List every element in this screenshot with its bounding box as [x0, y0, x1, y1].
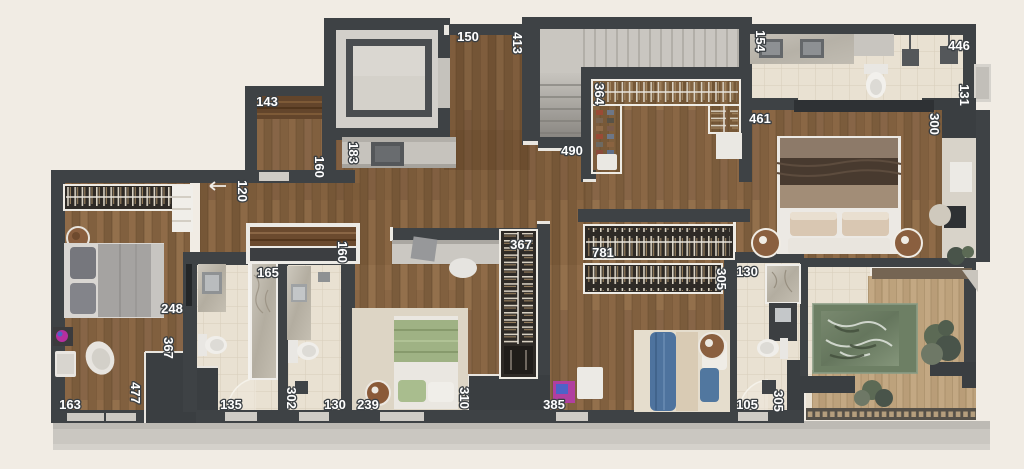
- svg-text:130: 130: [324, 397, 346, 412]
- svg-text:367: 367: [510, 237, 532, 252]
- svg-text:143: 143: [256, 94, 278, 109]
- svg-text:781: 781: [592, 245, 614, 260]
- svg-text:364: 364: [592, 83, 607, 105]
- svg-text:154: 154: [753, 30, 768, 52]
- svg-text:461: 461: [749, 111, 771, 126]
- svg-text:183: 183: [346, 142, 361, 164]
- svg-text:300: 300: [927, 113, 942, 135]
- svg-text:490: 490: [561, 143, 583, 158]
- svg-text:305: 305: [714, 268, 729, 290]
- svg-text:165: 165: [257, 265, 279, 280]
- svg-text:413: 413: [510, 32, 525, 54]
- svg-text:302: 302: [284, 387, 299, 409]
- svg-text:160: 160: [312, 156, 327, 178]
- svg-text:305: 305: [771, 390, 786, 412]
- svg-text:385: 385: [543, 397, 565, 412]
- svg-text:163: 163: [59, 397, 81, 412]
- svg-text:135: 135: [220, 397, 242, 412]
- svg-text:160: 160: [335, 241, 350, 263]
- svg-text:131: 131: [957, 84, 972, 106]
- svg-text:248: 248: [161, 301, 183, 316]
- svg-text:367: 367: [161, 337, 176, 359]
- svg-text:105: 105: [736, 397, 758, 412]
- svg-text:310: 310: [457, 387, 472, 409]
- svg-text:120: 120: [235, 180, 250, 202]
- svg-text:150: 150: [457, 29, 479, 44]
- svg-text:477: 477: [128, 382, 143, 404]
- svg-text:130: 130: [736, 264, 758, 279]
- svg-text:446: 446: [948, 38, 970, 53]
- svg-text:239: 239: [357, 397, 379, 412]
